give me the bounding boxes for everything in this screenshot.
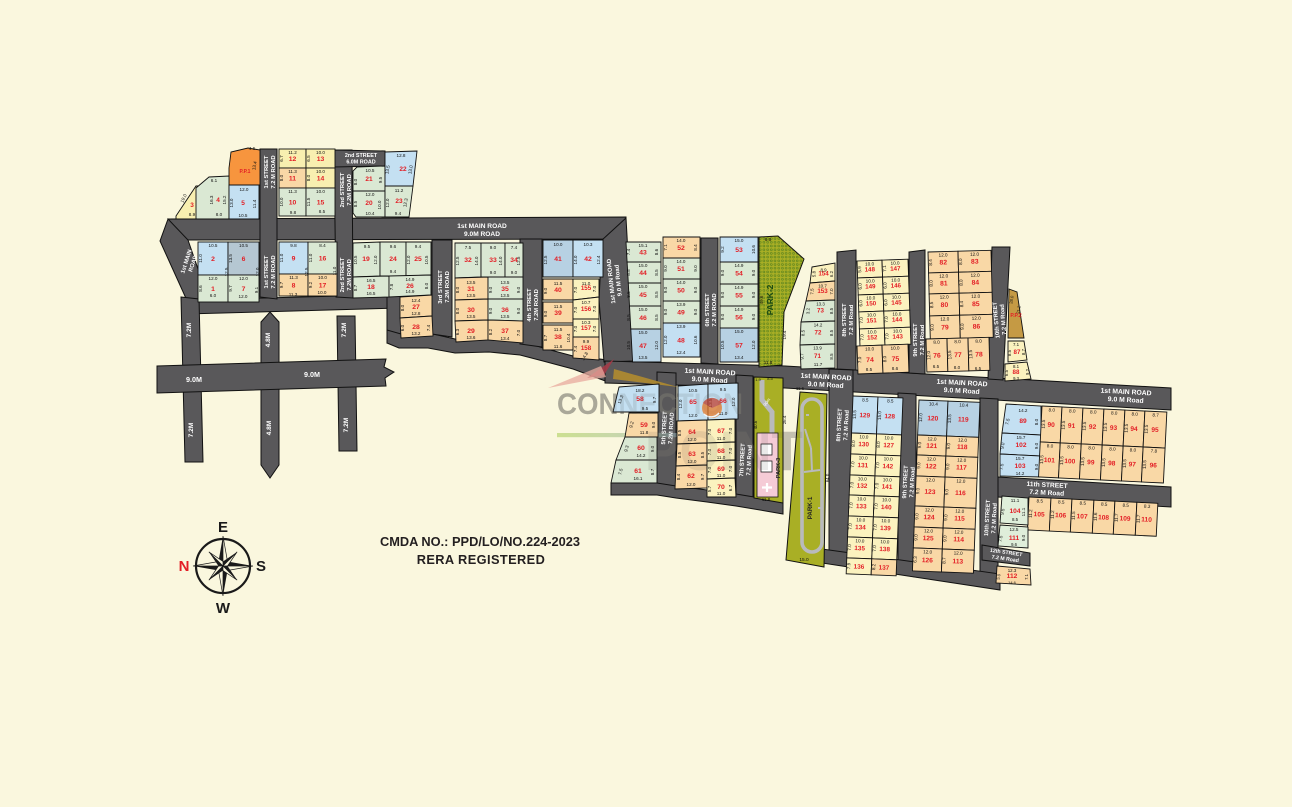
svg-text:7.0: 7.0 <box>592 305 597 312</box>
svg-text:8.5: 8.5 <box>626 314 631 321</box>
svg-text:33: 33 <box>489 257 497 264</box>
svg-text:10.0: 10.0 <box>881 518 891 523</box>
svg-text:6.0: 6.0 <box>858 300 863 307</box>
svg-text:9.0M ROAD: 9.0M ROAD <box>464 231 500 238</box>
svg-text:8.5: 8.5 <box>1037 498 1044 503</box>
svg-text:10.0: 10.0 <box>318 275 327 280</box>
svg-text:7.0: 7.0 <box>829 288 834 295</box>
svg-text:85: 85 <box>972 301 980 308</box>
svg-text:10.0: 10.0 <box>866 278 876 283</box>
svg-text:11.5: 11.5 <box>554 304 563 309</box>
svg-text:38: 38 <box>554 334 562 341</box>
svg-text:8.0: 8.0 <box>400 304 405 311</box>
svg-text:55: 55 <box>735 292 743 299</box>
svg-text:27: 27 <box>412 304 420 311</box>
svg-text:157: 157 <box>581 325 592 332</box>
svg-text:9.8: 9.8 <box>290 243 297 248</box>
svg-text:8.1: 8.1 <box>1013 364 1020 369</box>
svg-text:12.0: 12.0 <box>925 507 935 512</box>
svg-text:7.0: 7.0 <box>573 286 578 293</box>
svg-text:13.5: 13.5 <box>639 355 648 360</box>
svg-text:11.2: 11.2 <box>1050 510 1055 519</box>
svg-text:8.5: 8.5 <box>829 329 834 336</box>
svg-text:7.2 M ROAD: 7.2 M ROAD <box>712 293 718 326</box>
svg-text:12.5: 12.5 <box>1010 527 1019 532</box>
svg-text:12.4: 12.4 <box>596 255 601 264</box>
svg-text:6.5: 6.5 <box>306 155 311 162</box>
svg-text:140: 140 <box>881 504 892 511</box>
svg-text:60: 60 <box>637 445 645 452</box>
svg-text:2: 2 <box>211 256 215 263</box>
svg-text:7.1: 7.1 <box>1024 573 1029 579</box>
svg-text:16: 16 <box>319 255 327 262</box>
svg-text:14.0: 14.0 <box>573 255 578 264</box>
svg-text:8.5: 8.5 <box>1012 517 1019 522</box>
svg-text:7.0: 7.0 <box>592 325 597 332</box>
svg-text:13.5: 13.5 <box>947 350 952 360</box>
svg-text:10.7: 10.7 <box>582 300 591 305</box>
svg-text:117: 117 <box>956 464 967 471</box>
svg-text:13.9: 13.9 <box>677 302 686 307</box>
svg-text:111: 111 <box>1009 535 1020 542</box>
svg-text:84: 84 <box>971 280 979 287</box>
svg-text:8.5: 8.5 <box>829 353 834 360</box>
svg-text:7.2M: 7.2M <box>341 322 348 337</box>
svg-text:12.0: 12.0 <box>366 192 375 197</box>
svg-text:9.8: 9.8 <box>290 210 297 215</box>
svg-text:112: 112 <box>1007 573 1018 580</box>
svg-text:95: 95 <box>1151 427 1159 434</box>
svg-text:6.5: 6.5 <box>975 366 982 371</box>
svg-text:13.2: 13.2 <box>412 331 421 336</box>
svg-text:7.2M: 7.2M <box>188 422 195 437</box>
svg-text:76: 76 <box>933 353 941 360</box>
svg-text:12.0: 12.0 <box>971 273 981 278</box>
svg-text:7.2 M ROAD: 7.2 M ROAD <box>271 255 277 288</box>
svg-text:13.5: 13.5 <box>1080 457 1085 467</box>
svg-text:102: 102 <box>1015 442 1026 449</box>
svg-text:8.5: 8.5 <box>626 291 631 298</box>
svg-text:49.6: 49.6 <box>759 295 764 304</box>
svg-text:11.6: 11.6 <box>1093 512 1098 521</box>
svg-text:9.7: 9.7 <box>800 353 805 360</box>
svg-text:12.0: 12.0 <box>918 413 923 423</box>
svg-text:12.0: 12.0 <box>954 550 964 555</box>
svg-text:7.0: 7.0 <box>884 333 889 340</box>
svg-text:7.2M: 7.2M <box>186 322 193 337</box>
svg-text:74: 74 <box>866 357 874 364</box>
svg-text:37: 37 <box>501 328 509 335</box>
svg-text:8.0: 8.0 <box>1067 444 1074 449</box>
svg-text:12.0: 12.0 <box>940 316 950 321</box>
svg-text:9.0: 9.0 <box>693 265 698 272</box>
svg-text:9.0: 9.0 <box>1034 442 1039 449</box>
svg-text:9.2: 9.2 <box>1025 368 1030 375</box>
svg-text:14: 14 <box>317 175 325 182</box>
svg-text:47: 47 <box>639 343 647 350</box>
svg-text:132: 132 <box>857 483 868 490</box>
svg-text:7.0: 7.0 <box>884 316 889 323</box>
svg-text:10.4: 10.4 <box>929 401 939 406</box>
svg-text:10.0: 10.0 <box>884 456 894 461</box>
svg-text:13.5: 13.5 <box>501 293 510 298</box>
svg-text:16.5: 16.5 <box>367 291 376 296</box>
svg-text:8.6: 8.6 <box>198 285 203 292</box>
svg-text:11.6: 11.6 <box>762 497 771 502</box>
svg-text:8.0: 8.0 <box>1049 407 1056 412</box>
svg-text:9.0: 9.0 <box>663 308 668 315</box>
svg-text:13.5: 13.5 <box>1101 458 1106 468</box>
svg-text:11.5: 11.5 <box>554 281 563 286</box>
svg-text:6.7: 6.7 <box>728 484 733 491</box>
svg-text:9.0: 9.0 <box>490 245 497 250</box>
svg-text:4.8M: 4.8M <box>265 332 272 347</box>
svg-text:8.5: 8.5 <box>654 291 659 298</box>
svg-text:16.3: 16.3 <box>209 195 214 204</box>
svg-text:7.4: 7.4 <box>426 324 431 331</box>
svg-text:88: 88 <box>1013 369 1020 376</box>
svg-text:105: 105 <box>1033 511 1045 519</box>
svg-text:11.0: 11.0 <box>279 253 284 262</box>
svg-text:122: 122 <box>925 463 937 470</box>
svg-text:9.5: 9.5 <box>364 244 371 249</box>
svg-text:10.0: 10.0 <box>859 455 869 460</box>
svg-text:9.0: 9.0 <box>543 287 548 294</box>
svg-text:11.6: 11.6 <box>796 386 805 391</box>
svg-text:6.2: 6.2 <box>829 270 834 277</box>
svg-text:8.0: 8.0 <box>1088 445 1095 450</box>
svg-text:14.0: 14.0 <box>474 256 479 265</box>
svg-text:14.0: 14.0 <box>677 238 686 243</box>
svg-text:8.0: 8.0 <box>954 365 961 370</box>
svg-text:36: 36 <box>501 307 509 314</box>
svg-text:51: 51 <box>677 266 685 273</box>
svg-text:11.3: 11.3 <box>289 292 298 297</box>
svg-text:13.5: 13.5 <box>1082 421 1087 431</box>
svg-text:93: 93 <box>1110 425 1118 432</box>
svg-text:75: 75 <box>892 356 900 363</box>
svg-text:158: 158 <box>581 345 592 352</box>
svg-text:12.0: 12.0 <box>924 528 934 533</box>
svg-text:12.0: 12.0 <box>940 294 950 299</box>
svg-text:10.5: 10.5 <box>720 340 725 349</box>
svg-text:15.0: 15.0 <box>639 330 648 335</box>
svg-text:11.3: 11.3 <box>288 169 297 174</box>
svg-text:E: E <box>218 519 228 536</box>
svg-text:8.0: 8.0 <box>306 174 311 181</box>
svg-text:7.2M ROAD: 7.2M ROAD <box>347 174 353 206</box>
svg-text:4.8M: 4.8M <box>266 420 273 435</box>
svg-text:11.0: 11.0 <box>717 491 726 496</box>
svg-text:6.0: 6.0 <box>883 282 888 289</box>
svg-text:7.2 M Road: 7.2 M Road <box>849 304 855 335</box>
svg-text:7.0: 7.0 <box>850 461 855 468</box>
svg-text:11.7: 11.7 <box>1114 513 1119 522</box>
svg-text:81: 81 <box>940 280 948 287</box>
svg-text:8.0: 8.0 <box>1047 443 1054 448</box>
svg-text:41: 41 <box>554 256 562 263</box>
svg-text:10.0: 10.0 <box>891 346 901 351</box>
svg-text:9.0: 9.0 <box>720 313 725 320</box>
svg-text:7.1: 7.1 <box>663 244 668 251</box>
svg-text:10.0: 10.0 <box>855 538 865 543</box>
svg-text:12.0: 12.0 <box>927 456 937 461</box>
svg-text:12.5: 12.5 <box>516 256 521 265</box>
svg-text:11.5: 11.5 <box>554 327 563 332</box>
svg-text:14.9: 14.9 <box>735 285 744 290</box>
svg-text:13: 13 <box>317 156 325 163</box>
svg-text:149: 149 <box>865 283 876 290</box>
svg-text:10.5: 10.5 <box>239 213 248 218</box>
svg-text:10.0: 10.0 <box>859 434 869 439</box>
svg-text:54: 54 <box>735 270 743 277</box>
svg-text:129: 129 <box>859 412 870 419</box>
svg-text:153: 153 <box>817 288 828 295</box>
svg-text:13.5: 13.5 <box>1124 423 1129 433</box>
svg-text:7.0: 7.0 <box>875 462 880 469</box>
svg-text:8.0: 8.0 <box>959 279 964 286</box>
svg-text:8.0: 8.0 <box>424 282 429 289</box>
svg-text:107: 107 <box>1076 513 1088 521</box>
svg-text:10.0: 10.0 <box>865 346 875 351</box>
svg-text:12.0: 12.0 <box>751 340 756 349</box>
svg-text:15.7: 15.7 <box>1016 456 1025 461</box>
svg-text:13.5: 13.5 <box>467 314 476 319</box>
svg-text:125: 125 <box>923 535 935 542</box>
svg-text:10.0: 10.0 <box>865 261 875 266</box>
svg-text:7.5: 7.5 <box>810 288 815 295</box>
svg-text:7.0: 7.0 <box>848 523 853 530</box>
svg-text:12.0: 12.0 <box>939 273 949 278</box>
svg-text:9.0: 9.0 <box>960 323 965 330</box>
svg-text:143: 143 <box>892 333 903 340</box>
svg-text:9.5: 9.5 <box>378 176 383 183</box>
svg-text:13.5: 13.5 <box>1144 424 1149 434</box>
svg-text:8.5: 8.5 <box>929 301 934 308</box>
svg-text:40: 40 <box>554 287 562 294</box>
svg-text:14.2: 14.2 <box>814 323 823 328</box>
svg-text:7.0: 7.0 <box>573 325 578 332</box>
svg-text:13.4: 13.4 <box>501 336 510 341</box>
svg-text:8.7: 8.7 <box>1152 412 1159 417</box>
svg-text:12.8: 12.8 <box>397 153 406 158</box>
svg-text:12.0: 12.0 <box>958 438 968 443</box>
svg-text:96: 96 <box>1149 462 1157 469</box>
svg-text:8.5: 8.5 <box>887 398 894 403</box>
svg-text:130: 130 <box>858 441 869 448</box>
svg-text:11.5: 11.5 <box>1071 511 1076 520</box>
svg-text:10.0: 10.0 <box>882 497 892 502</box>
svg-text:10.0: 10.0 <box>316 189 325 194</box>
svg-text:9.0: 9.0 <box>915 487 920 494</box>
svg-text:82: 82 <box>939 259 947 266</box>
svg-text:155: 155 <box>581 285 592 292</box>
svg-text:15.0: 15.0 <box>639 263 648 268</box>
svg-text:9th STREET: 9th STREET <box>913 323 919 357</box>
svg-text:9.7: 9.7 <box>228 285 233 292</box>
svg-text:9.3: 9.3 <box>1013 376 1019 381</box>
svg-text:6.0: 6.0 <box>883 299 888 306</box>
svg-text:28: 28 <box>412 324 420 331</box>
svg-text:10.5: 10.5 <box>353 255 358 264</box>
svg-text:8.0: 8.0 <box>958 258 963 265</box>
svg-text:12.0: 12.0 <box>954 529 964 534</box>
svg-text:46: 46 <box>639 315 647 322</box>
svg-text:12.5: 12.5 <box>224 267 229 276</box>
svg-text:10.0: 10.0 <box>316 150 325 155</box>
svg-text:12.5: 12.5 <box>304 267 309 276</box>
svg-text:77: 77 <box>954 352 962 359</box>
svg-text:79: 79 <box>941 324 949 331</box>
svg-text:7.0: 7.0 <box>873 503 878 510</box>
svg-text:9.0: 9.0 <box>913 534 918 541</box>
svg-text:9.0: 9.0 <box>751 269 756 276</box>
svg-text:9.0: 9.0 <box>490 270 497 275</box>
svg-text:15.0: 15.0 <box>639 284 648 289</box>
svg-text:7.0: 7.0 <box>849 481 854 488</box>
svg-text:11.2: 11.2 <box>288 150 297 155</box>
svg-text:15.0: 15.0 <box>735 329 744 334</box>
svg-text:10.3: 10.3 <box>584 242 593 247</box>
svg-text:5: 5 <box>241 200 245 207</box>
svg-text:12.0: 12.0 <box>687 482 696 487</box>
svg-text:9.2: 9.2 <box>720 246 725 253</box>
svg-text:7.1: 7.1 <box>882 265 887 272</box>
svg-text:19: 19 <box>362 256 370 263</box>
svg-text:61: 61 <box>634 468 642 475</box>
svg-text:10.0: 10.0 <box>279 197 284 206</box>
svg-text:18: 18 <box>367 284 375 291</box>
svg-text:101: 101 <box>1044 457 1056 465</box>
svg-text:7.0: 7.0 <box>857 356 862 363</box>
svg-text:10.4: 10.4 <box>566 333 571 342</box>
svg-text:8.5: 8.5 <box>319 209 326 214</box>
svg-text:9.0: 9.0 <box>942 535 947 542</box>
svg-text:90: 90 <box>1047 422 1055 429</box>
svg-text:8.5: 8.5 <box>1007 349 1012 356</box>
svg-text:9.0: 9.0 <box>516 286 521 293</box>
svg-text:8.0: 8.0 <box>882 355 887 362</box>
svg-text:8.6: 8.6 <box>654 248 659 255</box>
svg-text:8.0: 8.0 <box>975 339 982 344</box>
svg-text:8.0: 8.0 <box>876 441 881 448</box>
svg-text:10.4: 10.4 <box>959 403 969 408</box>
svg-text:12.0: 12.0 <box>385 198 390 207</box>
svg-text:7.4: 7.4 <box>511 245 518 250</box>
svg-text:9.0: 9.0 <box>516 307 521 314</box>
svg-text:8.7: 8.7 <box>942 557 947 564</box>
svg-text:N: N <box>179 558 190 575</box>
svg-text:9.0: 9.0 <box>720 291 725 298</box>
svg-text:9.0: 9.0 <box>1021 534 1026 541</box>
svg-text:120: 120 <box>927 415 939 422</box>
svg-text:14.9: 14.9 <box>406 289 415 294</box>
svg-text:4: 4 <box>216 197 220 204</box>
svg-text:1st STREET: 1st STREET <box>264 255 270 288</box>
svg-text:7.0: 7.0 <box>592 285 597 292</box>
svg-text:52: 52 <box>677 245 685 252</box>
svg-text:9.4: 9.4 <box>395 211 402 216</box>
svg-text:73: 73 <box>817 308 824 315</box>
svg-text:9.6: 9.6 <box>390 244 397 249</box>
svg-text:13.5: 13.5 <box>501 280 510 285</box>
svg-text:12.0: 12.0 <box>971 294 981 299</box>
svg-text:8.0: 8.0 <box>1131 411 1138 416</box>
svg-text:100: 100 <box>1064 458 1076 466</box>
svg-text:S: S <box>256 558 266 575</box>
svg-text:7.2M ROAD: 7.2M ROAD <box>347 259 353 291</box>
svg-text:6.0: 6.0 <box>858 283 863 290</box>
svg-text:15.0: 15.0 <box>799 557 809 563</box>
svg-text:9.0: 9.0 <box>916 462 921 469</box>
svg-text:7.2M ROAD: 7.2M ROAD <box>534 289 540 321</box>
svg-text:6.0: 6.0 <box>210 293 217 298</box>
svg-text:11.2: 11.2 <box>395 188 404 193</box>
svg-text:7.2 M Road: 7.2 M Road <box>920 324 926 355</box>
svg-text:10.0: 10.0 <box>891 277 901 282</box>
svg-text:19.4: 19.4 <box>782 330 787 339</box>
svg-text:56: 56 <box>735 314 743 321</box>
svg-text:12.0: 12.0 <box>972 316 982 321</box>
svg-text:12: 12 <box>289 156 297 163</box>
svg-text:97: 97 <box>1128 461 1136 468</box>
svg-text:8.5: 8.5 <box>767 376 773 381</box>
svg-text:10.0: 10.0 <box>880 539 890 544</box>
svg-text:118: 118 <box>957 444 968 451</box>
svg-text:6.7: 6.7 <box>279 155 284 162</box>
svg-text:136: 136 <box>853 564 864 571</box>
svg-text:7.0: 7.0 <box>859 317 864 324</box>
svg-text:7.2M ROAD: 7.2M ROAD <box>445 271 451 303</box>
svg-text:12.0: 12.0 <box>970 252 980 257</box>
svg-text:5.9: 5.9 <box>857 266 862 273</box>
svg-text:1st STREET: 1st STREET <box>264 155 270 188</box>
svg-text:13.5: 13.5 <box>467 280 476 285</box>
svg-text:12.0: 12.0 <box>939 252 949 257</box>
svg-text:11.4: 11.4 <box>252 199 257 208</box>
svg-text:12.0: 12.0 <box>239 276 248 281</box>
svg-text:29: 29 <box>467 328 475 335</box>
svg-text:8: 8 <box>292 282 296 289</box>
svg-text:147: 147 <box>890 265 901 272</box>
svg-text:70: 70 <box>717 484 725 491</box>
svg-text:12.0: 12.0 <box>255 267 260 276</box>
svg-text:10.5: 10.5 <box>366 168 375 173</box>
svg-text:7.2 M ROAD: 7.2 M ROAD <box>271 155 277 188</box>
svg-text:10.5: 10.5 <box>209 243 218 248</box>
svg-text:9.0: 9.0 <box>751 291 756 298</box>
svg-text:7.0: 7.0 <box>873 524 878 531</box>
svg-text:9.0: 9.0 <box>543 310 548 317</box>
svg-text:W: W <box>216 600 231 617</box>
svg-text:15.7: 15.7 <box>1017 435 1026 440</box>
svg-text:5.7: 5.7 <box>707 485 712 492</box>
svg-text:11.1: 11.1 <box>1021 507 1026 516</box>
svg-text:10.4: 10.4 <box>366 211 375 216</box>
svg-text:89: 89 <box>1019 418 1027 425</box>
svg-text:12.5: 12.5 <box>455 256 460 265</box>
svg-text:110: 110 <box>1141 516 1152 524</box>
svg-text:9.7: 9.7 <box>279 281 284 288</box>
svg-text:9.0: 9.0 <box>944 488 949 495</box>
svg-text:10.0: 10.0 <box>318 290 327 295</box>
svg-text:10: 10 <box>289 199 297 206</box>
svg-text:83: 83 <box>971 259 979 266</box>
svg-text:12.5: 12.5 <box>543 255 548 264</box>
svg-text:9.0M: 9.0M <box>304 370 320 379</box>
svg-text:8.5: 8.5 <box>866 367 873 372</box>
svg-text:53: 53 <box>735 247 743 254</box>
